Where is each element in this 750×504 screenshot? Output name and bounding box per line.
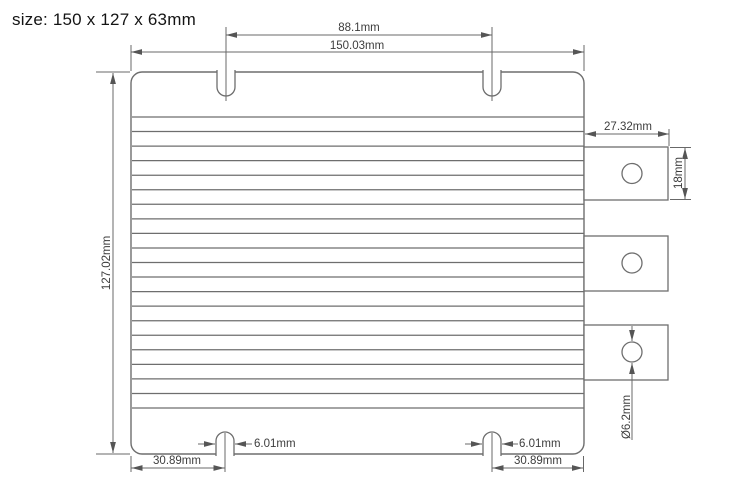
tab-hole-3 [622,342,642,362]
dim-label-slots-span: 88.1mm [338,22,380,34]
tab-hole-2 [622,253,642,273]
size-label: size: 150 x 127 x 63mm [12,10,196,30]
tab-hole-1 [622,164,642,184]
technical-drawing-page: size: 150 x 127 x 63mm [0,0,750,504]
dim-label-tab-width: 27.32mm [604,121,652,133]
dim-label-slot-width-left: 6.01mm [254,438,296,450]
dim-label-overall-width: 150.03mm [330,40,384,52]
dim-label-overall-height: 127.02mm [101,236,113,290]
dim-label-hole-diameter: Ø6.2mm [621,395,633,439]
dim-label-tab-height: 18mm [673,157,685,189]
dim-label-slot-width-right: 6.01mm [519,438,561,450]
heatsink-fins [132,117,584,408]
dim-label-slot-offset-left: 30.89mm [153,455,201,467]
dim-label-slot-offset-right: 30.89mm [514,455,562,467]
technical-drawing-svg: 88.1mm 150.03mm 127.02mm 27.32mm 18mm Ø6… [0,0,750,504]
